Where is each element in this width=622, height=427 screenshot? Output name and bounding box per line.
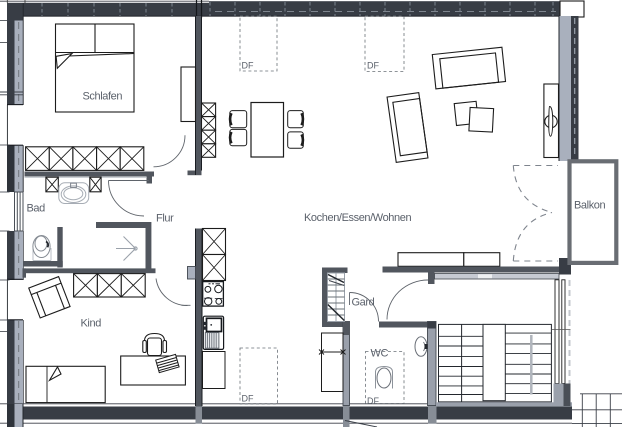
svg-text:DF: DF	[242, 394, 254, 404]
svg-text:Schlafen: Schlafen	[83, 91, 123, 103]
svg-text:Balkon: Balkon	[574, 200, 606, 212]
svg-text:Flur: Flur	[156, 213, 174, 225]
svg-text:Kind: Kind	[81, 318, 102, 330]
svg-text:WC: WC	[371, 348, 389, 360]
svg-text:Kochen/Essen/Wohnen: Kochen/Essen/Wohnen	[304, 212, 411, 224]
svg-text:DF: DF	[242, 61, 254, 71]
svg-text:Bad: Bad	[27, 203, 46, 215]
svg-text:DF: DF	[367, 396, 379, 406]
svg-text:DF: DF	[367, 61, 379, 71]
